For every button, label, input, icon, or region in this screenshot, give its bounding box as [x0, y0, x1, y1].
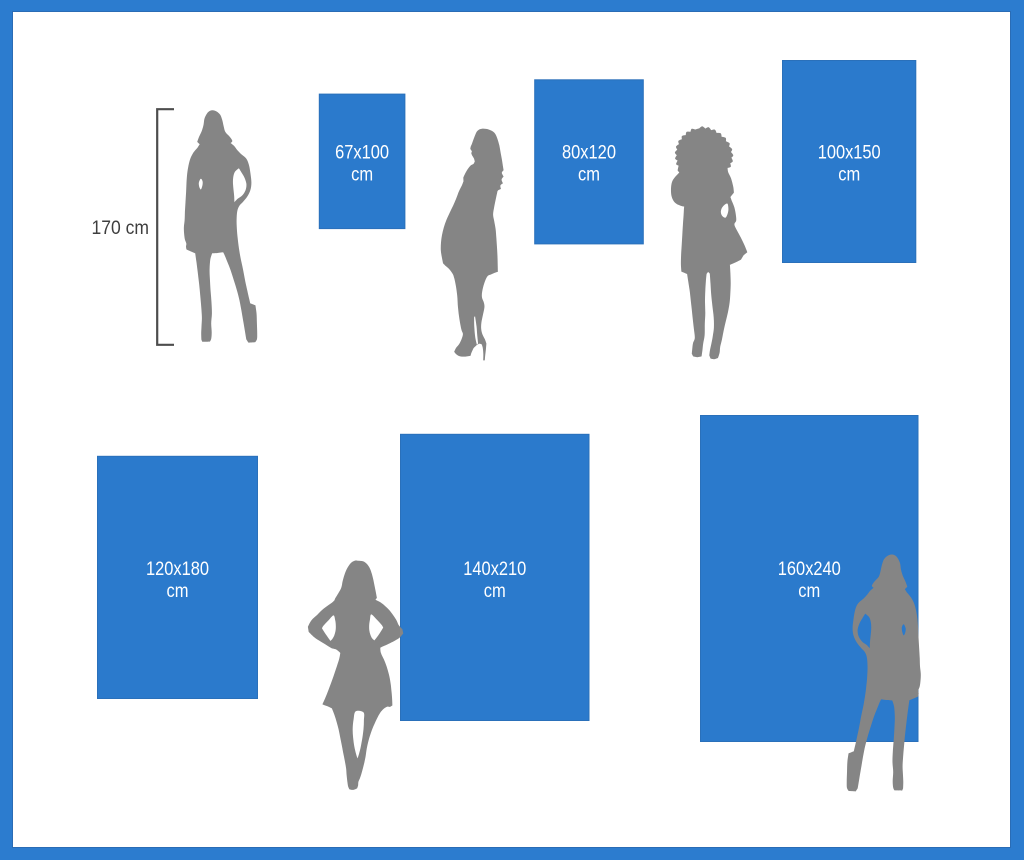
- svg-text:cm: cm: [798, 581, 820, 602]
- svg-text:cm: cm: [838, 164, 860, 185]
- svg-text:cm: cm: [167, 581, 189, 602]
- svg-text:67x100: 67x100: [335, 142, 389, 163]
- svg-text:cm: cm: [351, 164, 373, 185]
- svg-text:cm: cm: [484, 581, 506, 602]
- svg-text:cm: cm: [578, 164, 600, 185]
- svg-text:160x240: 160x240: [778, 559, 841, 580]
- svg-text:120x180: 120x180: [146, 559, 209, 580]
- svg-text:140x210: 140x210: [463, 559, 526, 580]
- svg-text:100x150: 100x150: [818, 142, 881, 163]
- svg-text:170 cm: 170 cm: [92, 218, 150, 239]
- svg-text:80x120: 80x120: [562, 142, 616, 163]
